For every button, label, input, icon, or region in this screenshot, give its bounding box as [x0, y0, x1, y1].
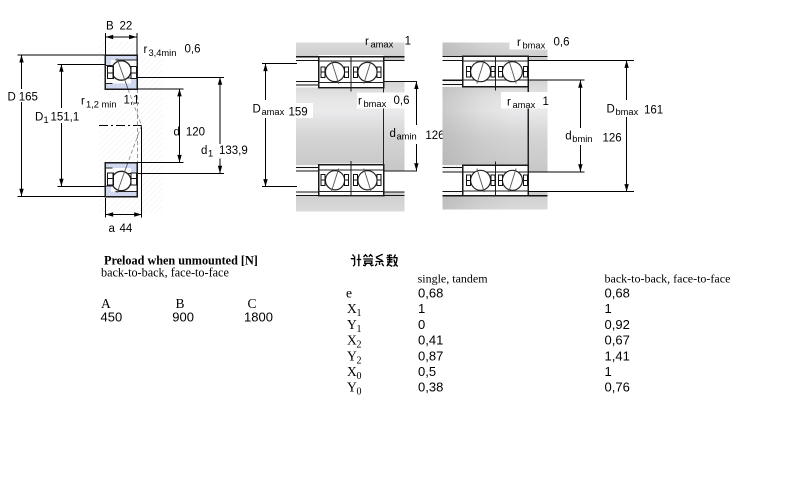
svg-text:1,41: 1,41	[605, 348, 630, 363]
svg-text:0,68: 0,68	[605, 286, 630, 301]
svg-text:r: r	[358, 96, 362, 108]
svg-text:0,6: 0,6	[394, 95, 410, 107]
svg-text:0,76: 0,76	[605, 380, 630, 395]
svg-text:133,9: 133,9	[219, 145, 248, 157]
svg-text:450: 450	[101, 309, 123, 324]
svg-text:22: 22	[120, 21, 133, 33]
svg-text:0,41: 0,41	[418, 333, 443, 348]
svg-text:back-to-back, face-to-face: back-to-back, face-to-face	[605, 271, 731, 285]
svg-text:X: X	[347, 301, 357, 316]
svg-text:126: 126	[603, 133, 622, 145]
svg-text:1800: 1800	[244, 309, 273, 324]
svg-text:0: 0	[357, 387, 362, 398]
svg-text:1: 1	[357, 324, 362, 335]
svg-text:d: d	[390, 128, 396, 140]
svg-text:d: d	[174, 127, 180, 139]
svg-text:0,5: 0,5	[418, 364, 436, 379]
svg-text:amax: amax	[262, 107, 285, 117]
svg-text:amax: amax	[371, 40, 394, 50]
svg-text:Y: Y	[347, 380, 357, 395]
svg-text:r: r	[517, 37, 521, 49]
svg-text:back-to-back, face-to-face: back-to-back, face-to-face	[101, 266, 229, 280]
svg-text:B: B	[106, 21, 114, 33]
svg-text:1: 1	[418, 301, 425, 316]
svg-text:165: 165	[19, 91, 38, 103]
svg-text:151,1: 151,1	[51, 111, 80, 123]
svg-text:2: 2	[357, 340, 362, 351]
svg-text:1: 1	[44, 115, 49, 125]
svg-text:d: d	[565, 131, 571, 143]
svg-text:D: D	[8, 91, 16, 103]
svg-text:bmax: bmax	[364, 99, 387, 109]
svg-text:126: 126	[425, 130, 444, 142]
svg-text:Y: Y	[347, 348, 357, 363]
svg-text:1: 1	[543, 96, 549, 108]
svg-text:0,67: 0,67	[605, 333, 630, 348]
svg-text:amin: amin	[397, 132, 417, 142]
svg-text:bmin: bmin	[572, 134, 592, 144]
svg-text:0: 0	[357, 371, 362, 382]
svg-text:r: r	[365, 36, 369, 48]
svg-text:0,87: 0,87	[418, 348, 443, 363]
svg-text:1: 1	[208, 149, 213, 159]
svg-text:bmax: bmax	[616, 107, 639, 117]
svg-text:0,6: 0,6	[185, 44, 201, 56]
svg-text:D: D	[253, 104, 261, 116]
svg-text:single, tandem: single, tandem	[418, 271, 489, 285]
svg-text:D: D	[35, 111, 43, 123]
svg-text:161: 161	[644, 105, 663, 117]
svg-text:r: r	[81, 96, 85, 108]
svg-text:bmax: bmax	[523, 41, 546, 51]
svg-text:r: r	[507, 97, 511, 109]
svg-text:Y: Y	[347, 317, 357, 332]
svg-text:0,92: 0,92	[605, 317, 630, 332]
svg-text:X: X	[347, 364, 357, 379]
svg-text:1,2 min: 1,2 min	[86, 100, 117, 110]
svg-text:r: r	[144, 44, 148, 56]
svg-text:1: 1	[605, 364, 612, 379]
svg-text:159: 159	[289, 107, 308, 119]
svg-text:44: 44	[120, 223, 133, 235]
svg-text:1: 1	[405, 36, 411, 48]
svg-text:d: d	[201, 145, 207, 157]
svg-text:3,4min: 3,4min	[149, 48, 177, 58]
svg-text:e: e	[346, 286, 352, 301]
svg-text:120: 120	[186, 127, 205, 139]
svg-text:amax: amax	[513, 100, 536, 110]
svg-text:0: 0	[418, 317, 425, 332]
svg-text:X: X	[347, 333, 357, 348]
svg-text:a: a	[109, 223, 116, 235]
svg-text:1: 1	[605, 301, 612, 316]
svg-text:2: 2	[357, 355, 362, 366]
svg-text:0,38: 0,38	[418, 380, 443, 395]
svg-text:0,68: 0,68	[418, 286, 443, 301]
svg-text:900: 900	[172, 309, 194, 324]
svg-text:0,6: 0,6	[554, 37, 570, 49]
svg-text:1: 1	[357, 308, 362, 319]
svg-text:D: D	[607, 104, 615, 116]
